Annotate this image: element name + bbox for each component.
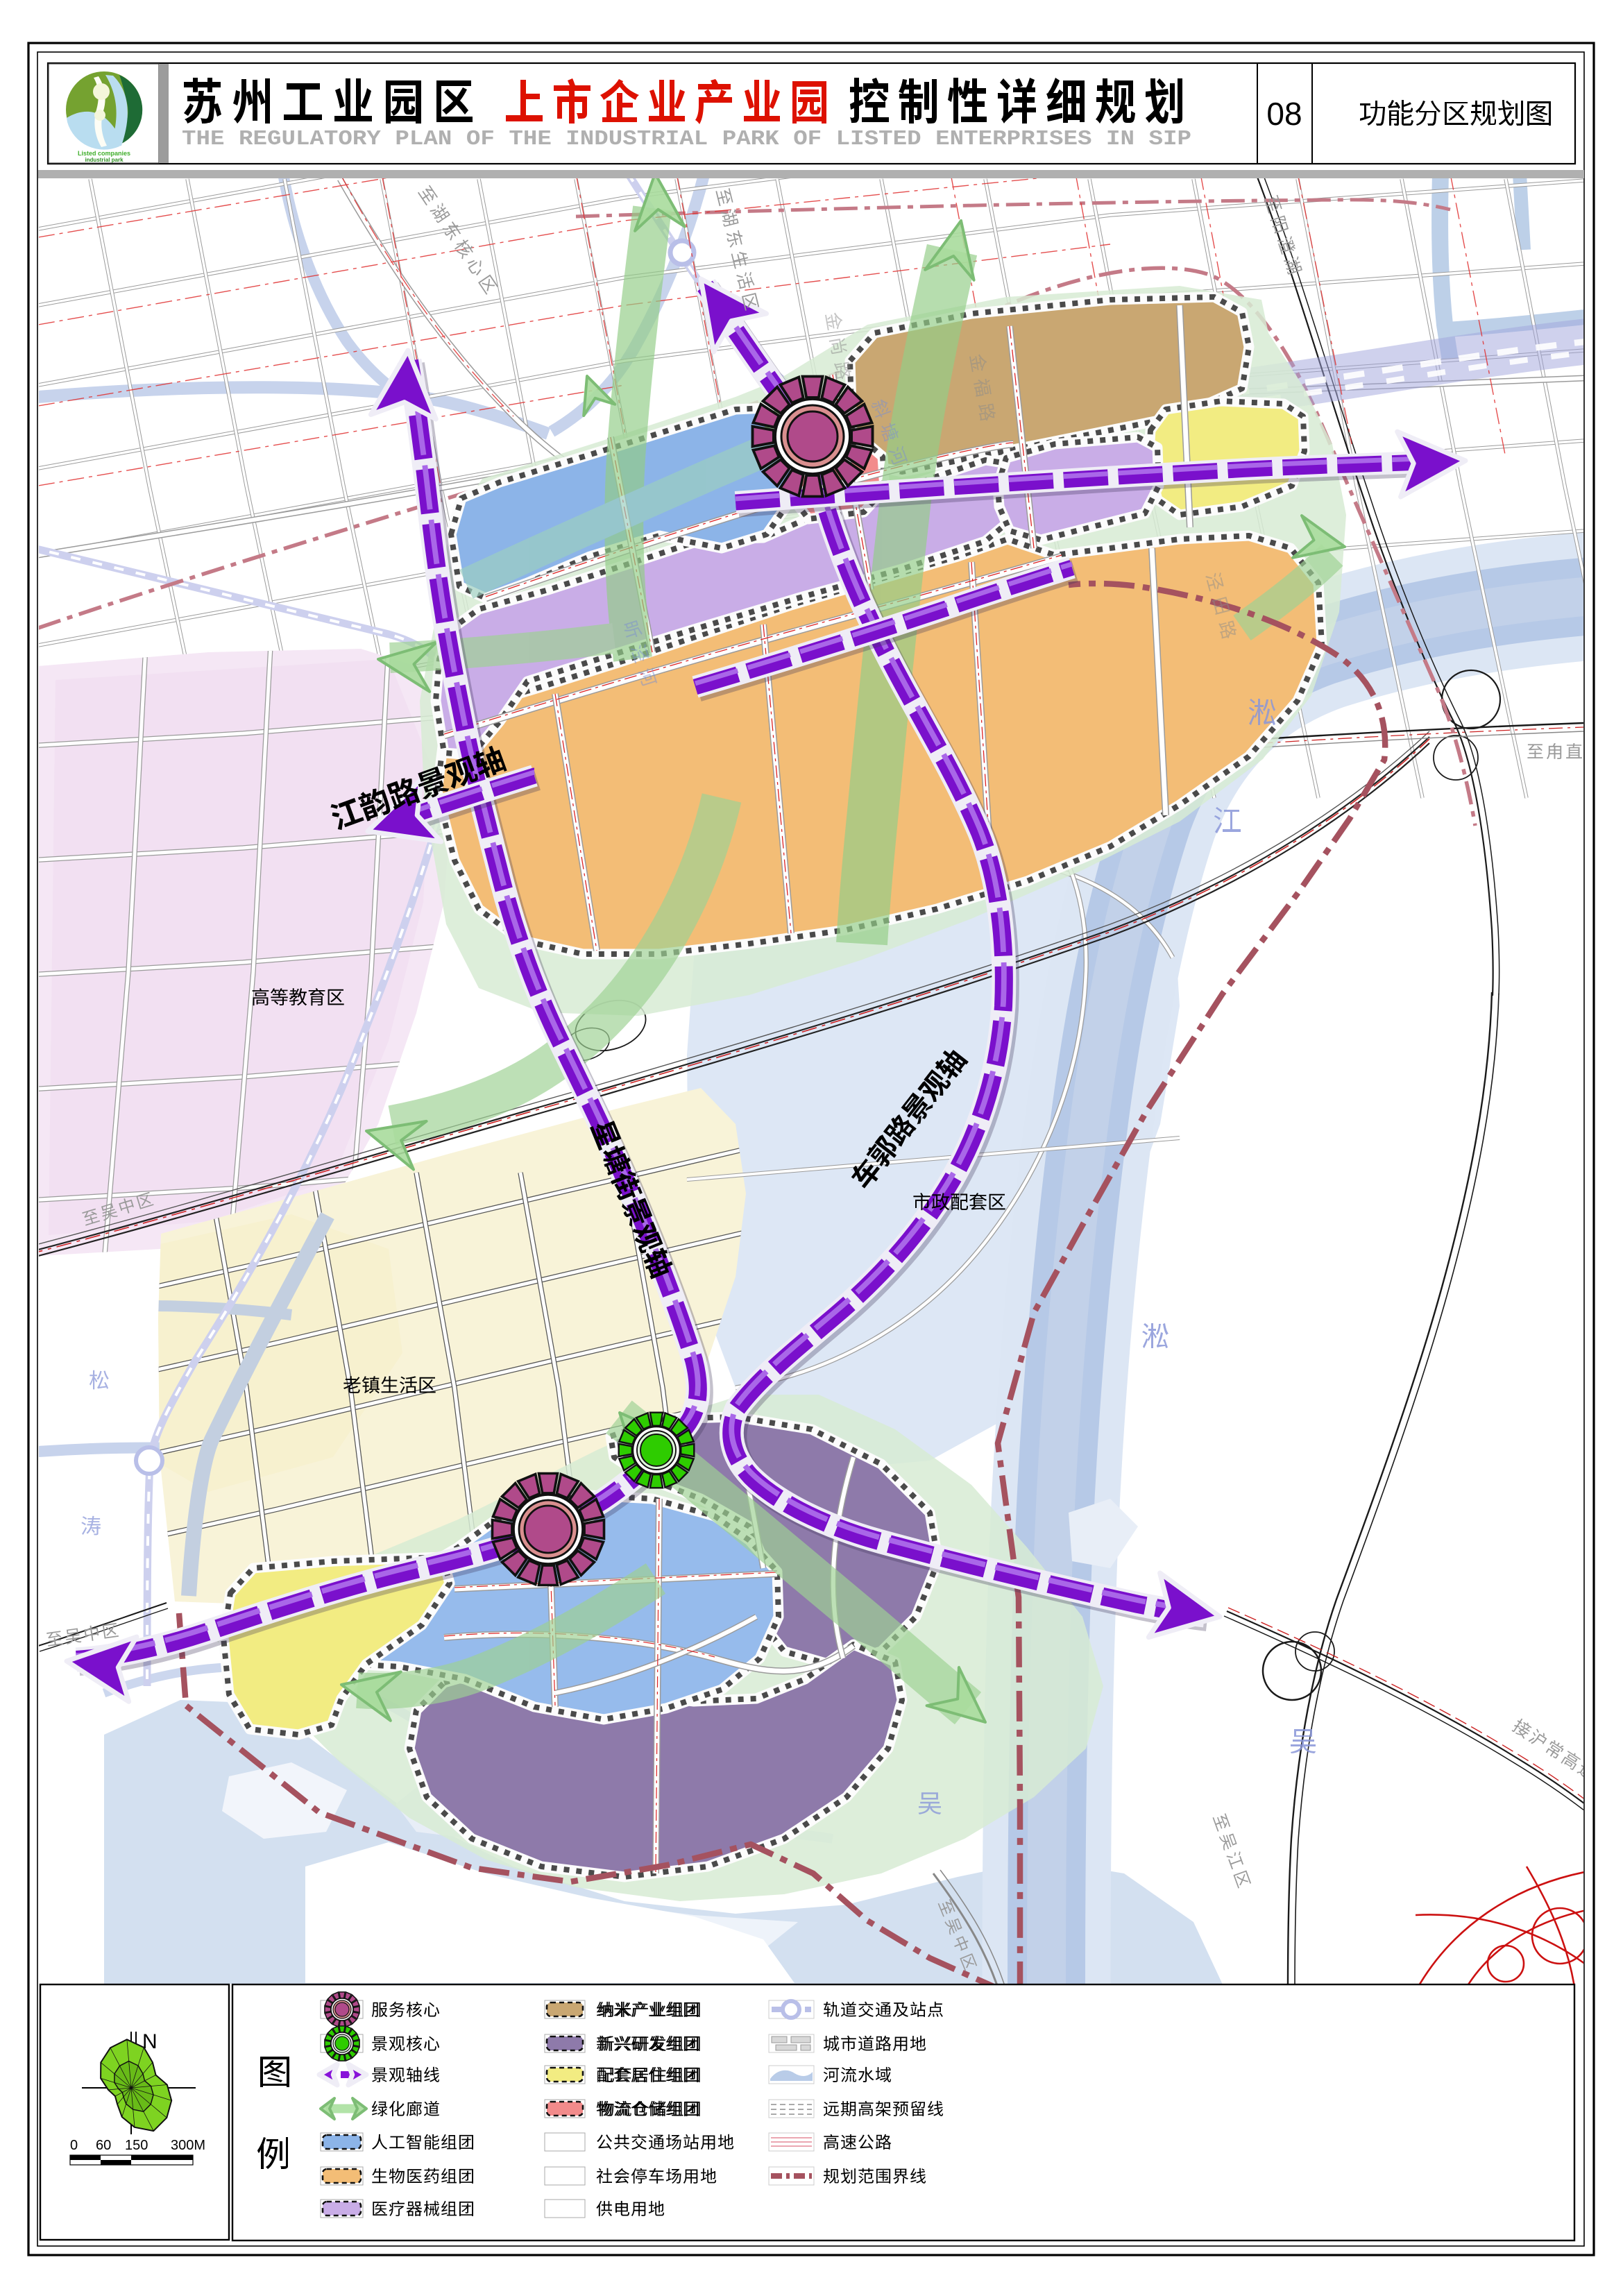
svg-text:industrial park: industrial park: [85, 157, 124, 163]
svg-text:300M: 300M: [171, 2138, 205, 2153]
svg-text:0: 0: [70, 2138, 78, 2153]
svg-text:Listed companies: Listed companies: [78, 150, 130, 157]
svg-text:THE REGULATORY PLAN OF THE IND: THE REGULATORY PLAN OF THE INDUSTRIAL PA…: [182, 127, 1191, 151]
svg-text:60: 60: [96, 2138, 111, 2153]
svg-text:150: 150: [125, 2138, 148, 2153]
svg-text:08: 08: [1266, 96, 1302, 132]
